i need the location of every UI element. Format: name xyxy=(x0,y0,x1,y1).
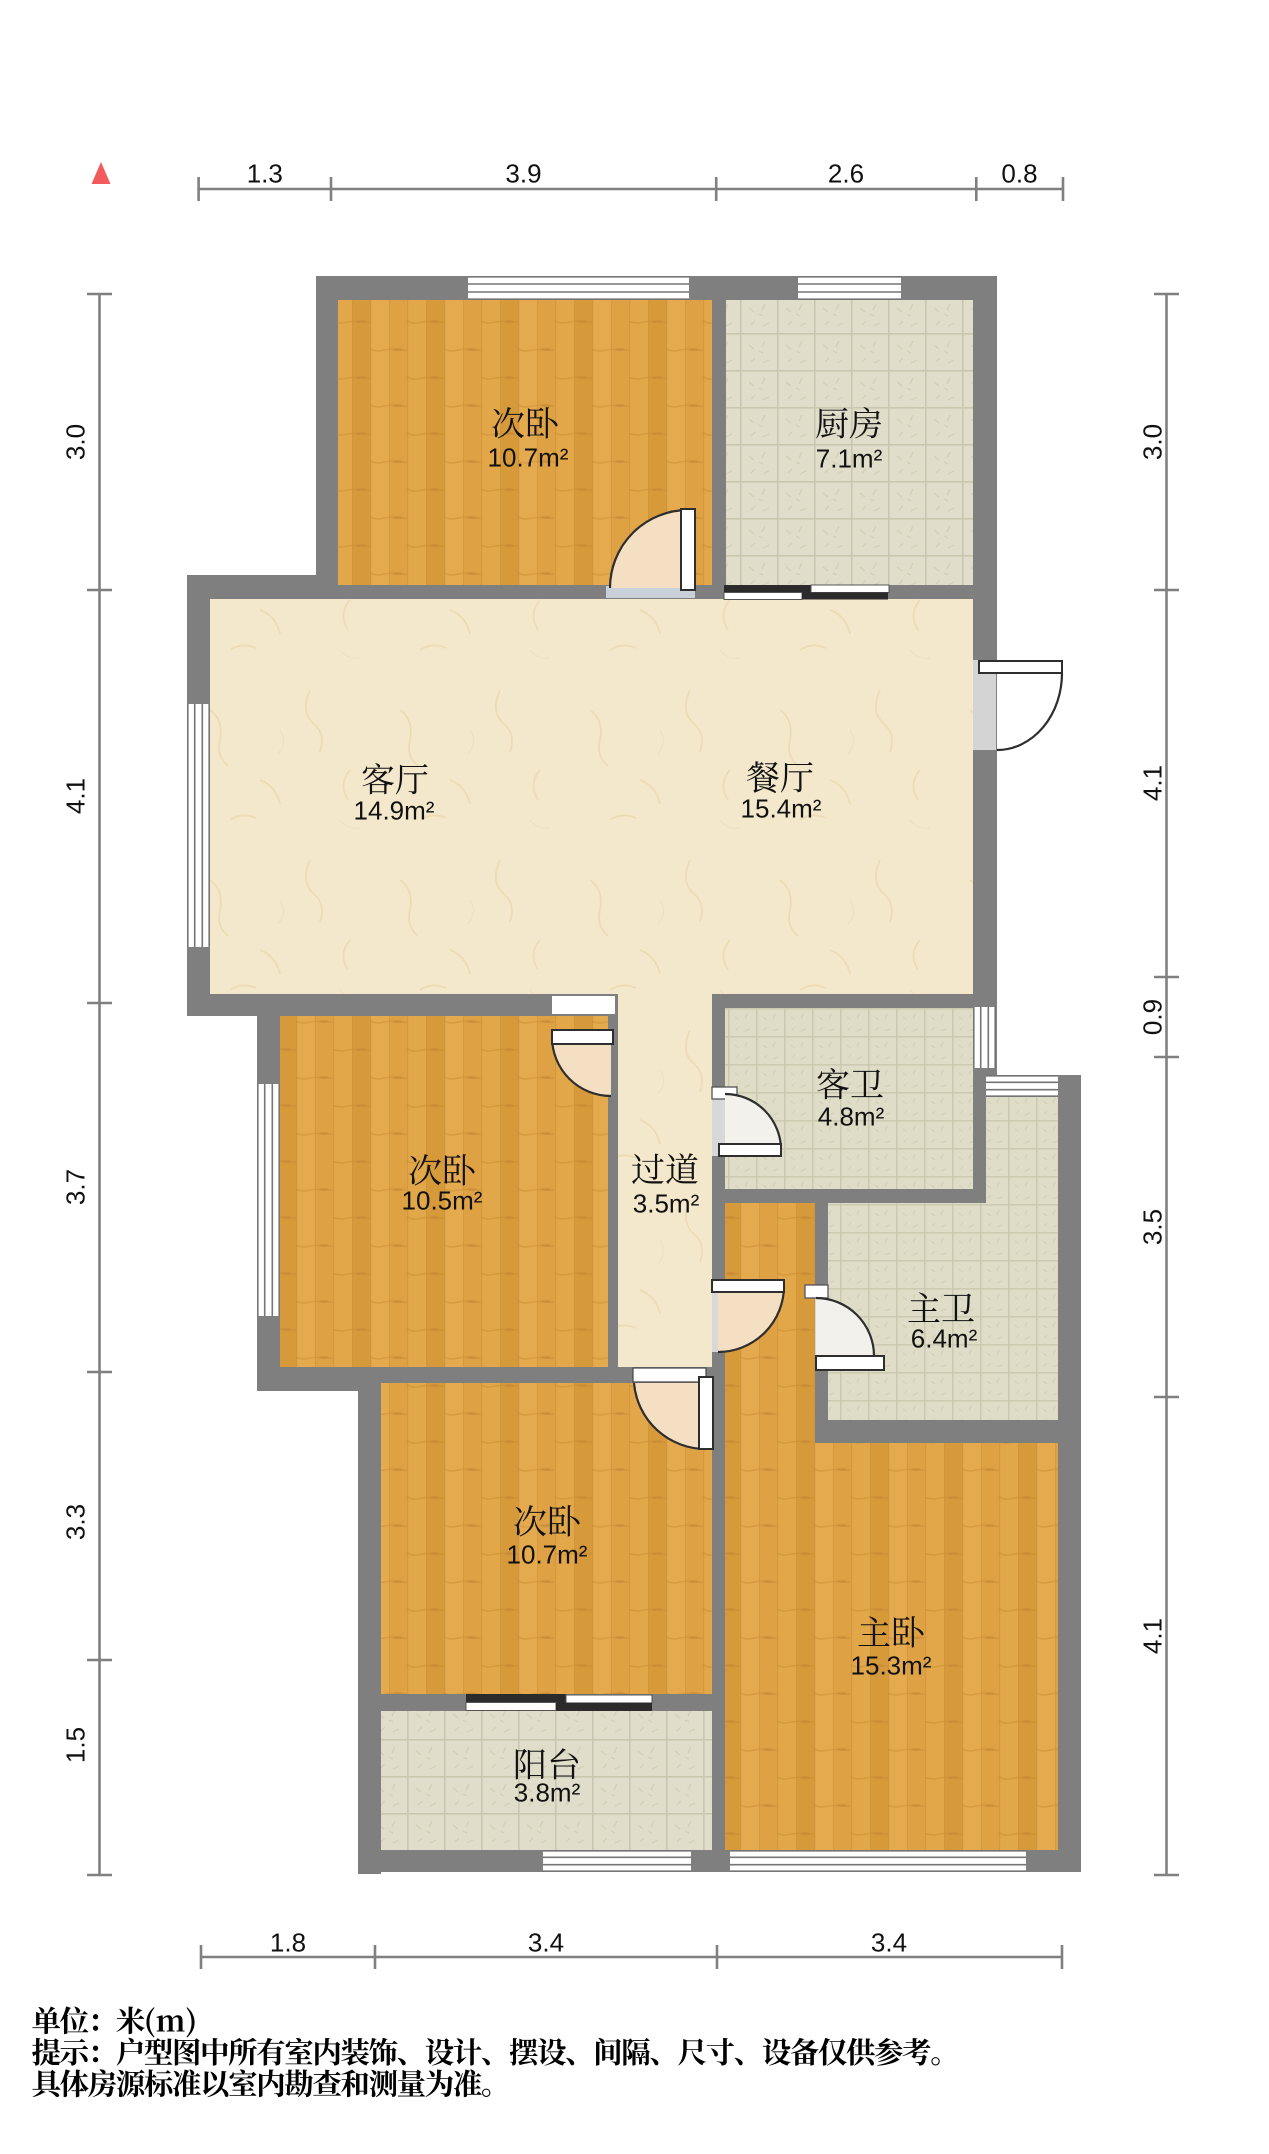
svg-text:10.5m²: 10.5m² xyxy=(402,1185,483,1215)
svg-text:1.5: 1.5 xyxy=(60,1727,90,1763)
svg-text:3.0: 3.0 xyxy=(1137,424,1167,460)
svg-text:4.1: 4.1 xyxy=(1137,1618,1167,1654)
svg-text:0.9: 0.9 xyxy=(1137,999,1167,1035)
svg-text:4.1: 4.1 xyxy=(1137,765,1167,801)
svg-text:1.8: 1.8 xyxy=(270,1927,306,1957)
svg-text:14.9m²: 14.9m² xyxy=(354,795,435,825)
svg-text:6.4m²: 6.4m² xyxy=(911,1323,978,1353)
svg-text:3.8m²: 3.8m² xyxy=(514,1777,581,1807)
svg-text:7.1m²: 7.1m² xyxy=(816,443,883,473)
svg-text:3.4: 3.4 xyxy=(528,1927,564,1957)
svg-text:3.0: 3.0 xyxy=(60,424,90,460)
svg-text:0.8: 0.8 xyxy=(1001,158,1037,188)
svg-text:3.5m²: 3.5m² xyxy=(633,1188,700,1218)
svg-text:15.3m²: 15.3m² xyxy=(851,1650,932,1680)
svg-text:4.8m²: 4.8m² xyxy=(818,1101,885,1131)
svg-text:10.7m²: 10.7m² xyxy=(507,1539,588,1569)
svg-text:3.7: 3.7 xyxy=(60,1169,90,1205)
svg-text:3.5: 3.5 xyxy=(1137,1209,1167,1245)
svg-text:2.6: 2.6 xyxy=(828,158,864,188)
svg-text:4.1: 4.1 xyxy=(60,778,90,814)
svg-text:3.4: 3.4 xyxy=(871,1927,907,1957)
svg-text:10.7m²: 10.7m² xyxy=(488,442,569,472)
svg-text:3.3: 3.3 xyxy=(60,1504,90,1540)
svg-text:15.4m²: 15.4m² xyxy=(741,793,822,823)
svg-text:3.9: 3.9 xyxy=(505,158,541,188)
svg-text:1.3: 1.3 xyxy=(247,158,283,188)
